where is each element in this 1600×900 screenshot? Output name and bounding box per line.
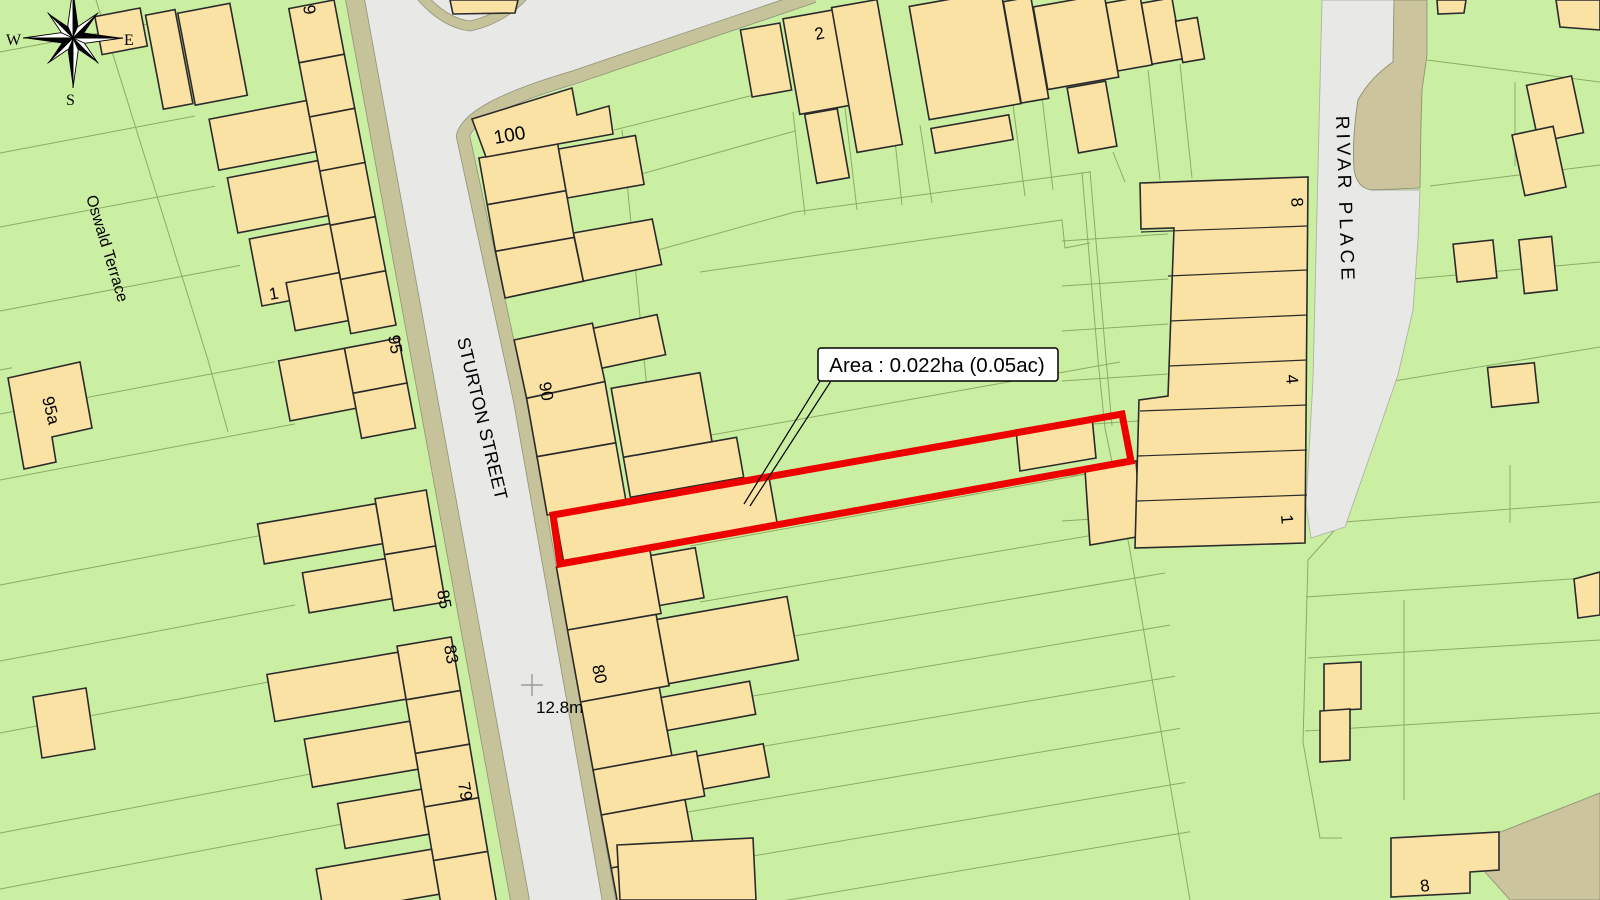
svg-text:80: 80 [588,663,611,685]
svg-text:S: S [66,92,75,109]
svg-text:W: W [6,32,22,49]
svg-text:Area : 0.022ha (0.05ac): Area : 0.022ha (0.05ac) [829,354,1044,377]
svg-text:12.8m: 12.8m [536,698,583,717]
svg-text:8: 8 [1287,197,1307,208]
svg-text:83: 83 [440,643,462,665]
svg-text:85: 85 [433,588,455,610]
svg-text:E: E [124,32,134,49]
svg-text:4: 4 [1282,374,1302,385]
svg-text:95: 95 [384,333,406,355]
svg-text:1: 1 [1277,514,1297,525]
svg-text:79: 79 [454,780,476,802]
svg-text:90: 90 [535,380,557,402]
